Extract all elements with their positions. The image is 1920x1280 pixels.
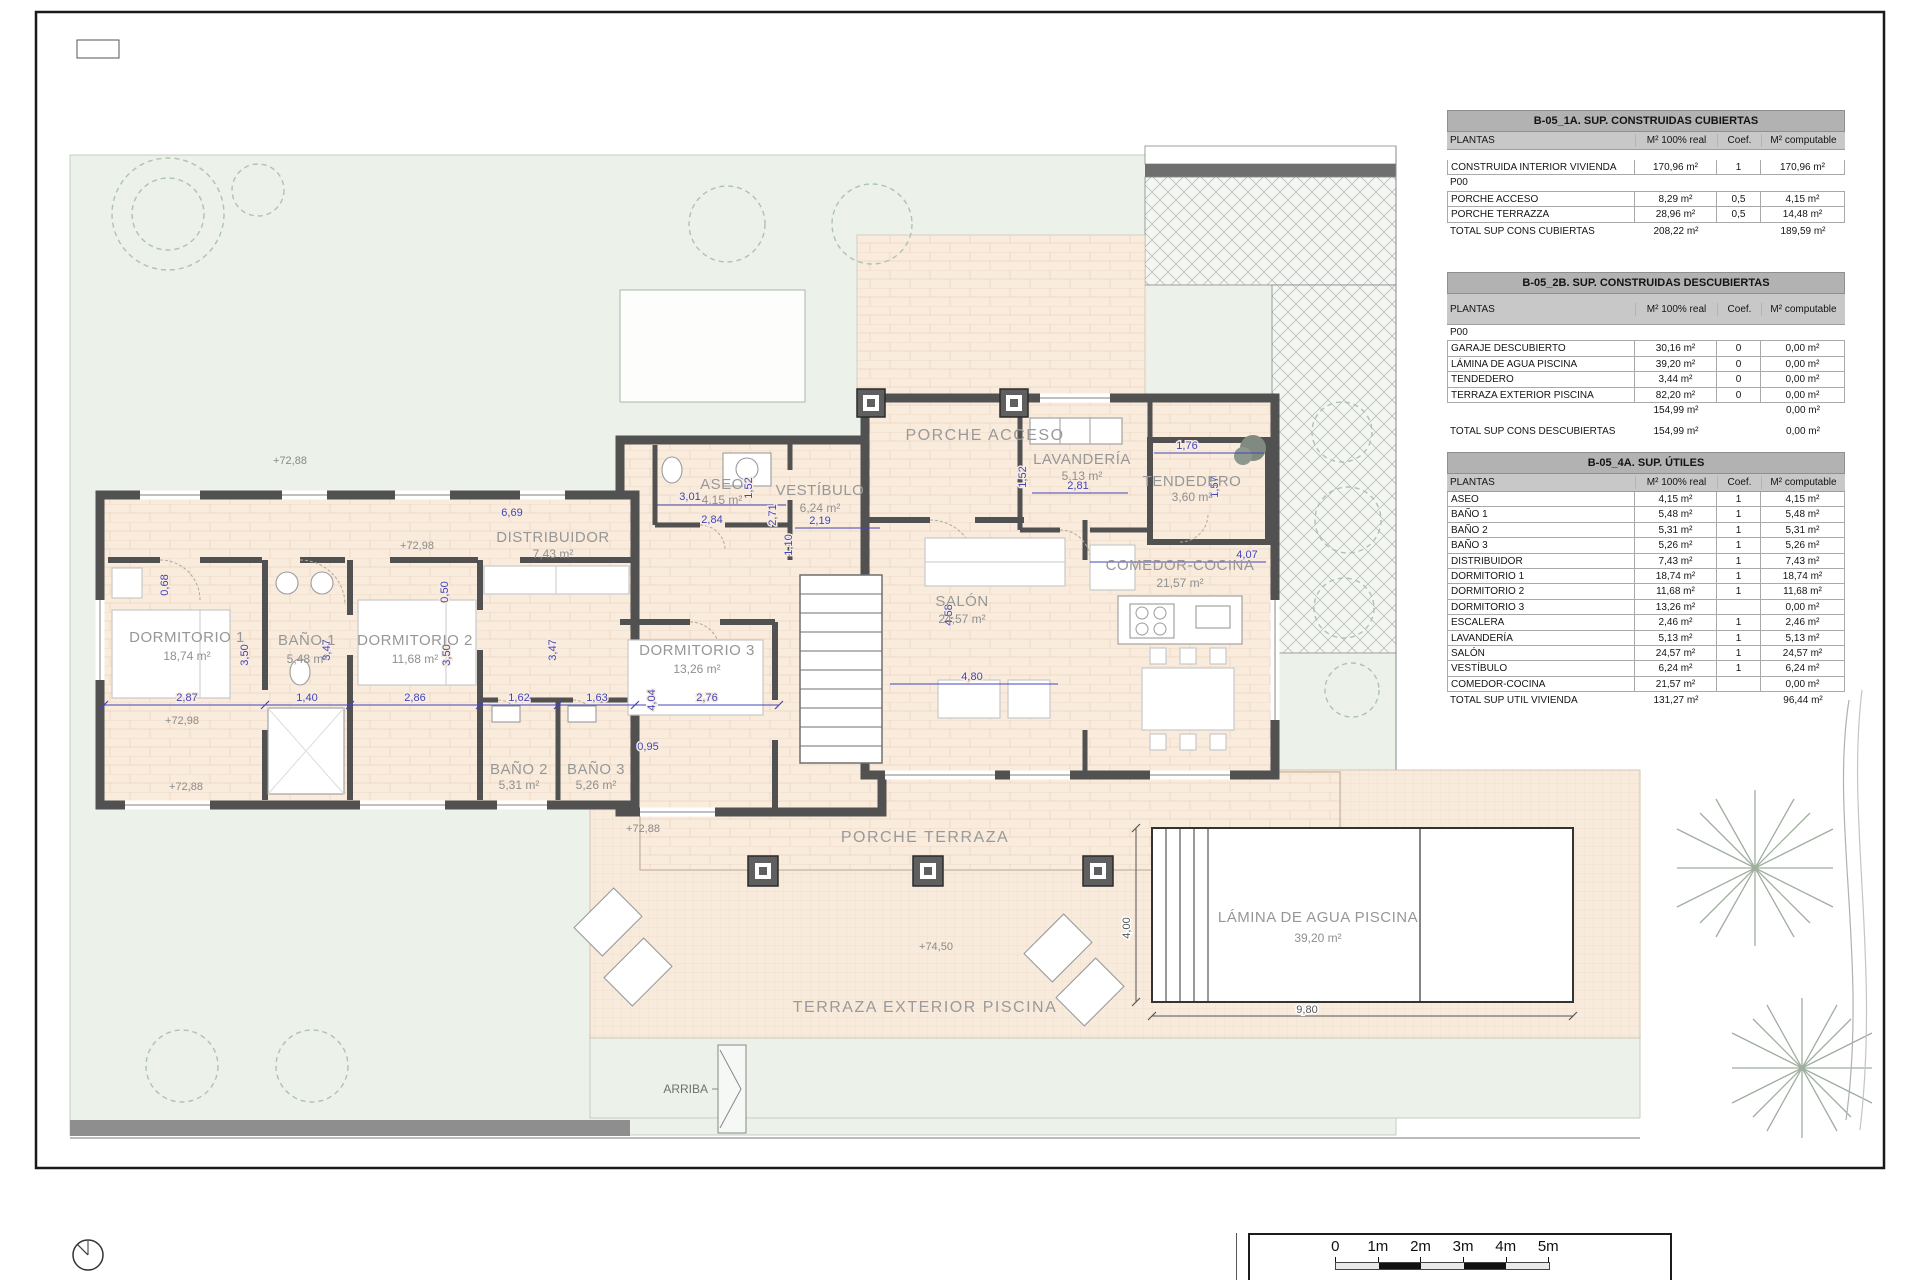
planter (620, 290, 805, 402)
svg-text:2,19: 2,19 (809, 515, 830, 527)
svg-text:0,95: 0,95 (637, 741, 658, 753)
scale-label: 2m (1399, 1238, 1442, 1255)
svg-text:21,57 m²: 21,57 m² (1156, 576, 1203, 590)
table-sup-utiles: B-05_4A. SUP. ÚTILES PLANTAS M² 100% rea… (1447, 452, 1845, 708)
table-row: PORCHE TERRAZZA 28,96 m² 0,5 14,48 m² (1447, 207, 1845, 222)
svg-text:2,71: 2,71 (767, 504, 779, 525)
room-label-bano2: BAÑO 2 (490, 761, 548, 778)
svg-text:1,10: 1,10 (783, 534, 795, 555)
table-row: TERRAZA EXTERIOR PISCINA 82,20 m² 0 0,00… (1447, 388, 1845, 403)
table-row: DORMITORIO 1 18,74 m² 1 18,74 m² (1447, 569, 1845, 584)
room-label-porche-acceso: PORCHE ACCESO (905, 427, 1064, 444)
svg-text:1,76: 1,76 (1176, 440, 1197, 452)
table-row: ASEO 4,15 m² 1 4,15 m² (1447, 492, 1845, 507)
svg-text:0,68: 0,68 (159, 574, 171, 595)
table-row: LAVANDERÍA 5,13 m² 1 5,13 m² (1447, 631, 1845, 646)
svg-text:3,50: 3,50 (239, 644, 251, 665)
table-row: BAÑO 2 5,31 m² 1 5,31 m² (1447, 523, 1845, 538)
table-title: B-05_2B. SUP. CONSTRUIDAS DESCUBIERTAS (1447, 272, 1845, 294)
table-header: PLANTAS M² 100% real Coef. M² computable (1447, 474, 1845, 492)
north-indicator-icon (70, 1237, 106, 1273)
svg-text:11,68 m²: 11,68 m² (392, 652, 438, 666)
stairs (800, 575, 882, 763)
table-total-row: TOTAL SUP UTIL VIVIENDA 131,27 m² 96,44 … (1447, 693, 1845, 708)
title-box (77, 40, 119, 58)
scale-label: 0 (1314, 1238, 1357, 1255)
room-label-lavanderia: LAVANDERÍA (1033, 451, 1131, 468)
scale-label: 5m (1527, 1238, 1570, 1255)
arriba-label: ARRIBA (663, 1082, 708, 1096)
svg-text:4,80: 4,80 (961, 671, 982, 683)
svg-text:4,00: 4,00 (1121, 917, 1133, 938)
table-row: BAÑO 1 5,48 m² 1 5,48 m² (1447, 507, 1845, 522)
room-label-salon: SALÓN (935, 593, 988, 610)
svg-text:5,48 m²: 5,48 m² (287, 652, 328, 666)
room-label-dormitorio1: DORMITORIO 1 (129, 629, 245, 646)
room-label-bano1: BAÑO 1 (278, 632, 336, 649)
svg-text:2,87: 2,87 (176, 692, 197, 704)
svg-text:3,60 m²: 3,60 m² (1172, 490, 1213, 504)
svg-text:7,43 m²: 7,43 m² (533, 547, 574, 561)
table-row: 154,99 m² 0,00 m² (1447, 403, 1845, 418)
svg-text:+72,98: +72,98 (400, 540, 434, 552)
svg-text:13,26 m²: 13,26 m² (673, 662, 720, 676)
room-label-comedor: COMEDOR-COCINA (1106, 557, 1255, 574)
svg-text:+72,88: +72,88 (273, 455, 307, 467)
table-row: DORMITORIO 3 13,26 m² 0,00 m² (1447, 600, 1845, 615)
scale-bar-segments (1335, 1262, 1550, 1270)
svg-text:2,76: 2,76 (696, 692, 717, 704)
room-label-dormitorio2: DORMITORIO 2 (357, 632, 473, 649)
svg-text:1,52: 1,52 (743, 477, 755, 498)
room-label-bano3: BAÑO 3 (567, 761, 625, 778)
table-title: B-05_4A. SUP. ÚTILES (1447, 452, 1845, 474)
table-row: CONSTRUIDA INTERIOR VIVIENDA 170,96 m² 1… (1447, 160, 1845, 175)
svg-text:+74,50: +74,50 (919, 941, 953, 953)
svg-text:2,84: 2,84 (701, 514, 722, 526)
table-row: LÁMINA DE AGUA PISCINA 39,20 m² 0 0,00 m… (1447, 357, 1845, 372)
table-total-row: TOTAL SUP CONS DESCUBIERTAS 154,99 m² 0,… (1447, 424, 1845, 439)
sheet-divider (1236, 1233, 1237, 1280)
svg-text:1,62: 1,62 (508, 692, 529, 704)
svg-text:0,50: 0,50 (439, 581, 451, 602)
room-label-aseo: ASEO (700, 476, 744, 493)
svg-text:1,40: 1,40 (296, 692, 317, 704)
svg-text:9,80: 9,80 (1296, 1004, 1317, 1016)
svg-text:5,26 m²: 5,26 m² (576, 778, 617, 792)
room-label-dormitorio3: DORMITORIO 3 (639, 642, 755, 659)
svg-text:6,69: 6,69 (501, 507, 522, 519)
table-row: DORMITORIO 2 11,68 m² 1 11,68 m² (1447, 584, 1845, 599)
table-row: PORCHE ACCESO 8,29 m² 0,5 4,15 m² (1447, 192, 1845, 207)
table-header: PLANTAS M² 100% real Coef. M² computable (1447, 294, 1845, 325)
table-row: VESTÍBULO 6,24 m² 1 6,24 m² (1447, 661, 1845, 676)
svg-text:39,20 m²: 39,20 m² (1294, 931, 1341, 945)
table-row: ESCALERA 2,46 m² 1 2,46 m² (1447, 615, 1845, 630)
svg-text:4,04: 4,04 (646, 689, 658, 710)
svg-text:+72,88: +72,88 (169, 781, 203, 793)
table-total-row: TOTAL SUP CONS CUBIERTAS 208,22 m² 189,5… (1447, 224, 1845, 239)
svg-text:3,47: 3,47 (547, 639, 559, 660)
table-row: P00 (1447, 325, 1845, 341)
table-row: BAÑO 3 5,26 m² 1 5,26 m² (1447, 538, 1845, 553)
entry-walk (857, 235, 1145, 403)
scale-label: 1m (1357, 1238, 1400, 1255)
table-sup-construidas-descubiertas: B-05_2B. SUP. CONSTRUIDAS DESCUBIERTAS P… (1447, 272, 1845, 440)
table-row: P00 (1447, 175, 1845, 191)
table-row: COMEDOR-COCINA 21,57 m² 0,00 m² (1447, 677, 1845, 692)
pool-label: LÁMINA DE AGUA PISCINA (1218, 909, 1418, 926)
svg-text:+72,98: +72,98 (165, 715, 199, 727)
svg-text:+72,88: +72,88 (626, 823, 660, 835)
svg-text:1,63: 1,63 (586, 692, 607, 704)
table-sup-construidas-cubiertas: B-05_1A. SUP. CONSTRUIDAS CUBIERTAS PLAN… (1447, 110, 1845, 239)
table-header: PLANTAS M² 100% real Coef. M² computable (1447, 132, 1845, 150)
svg-text:1,52: 1,52 (1017, 466, 1029, 487)
drawing-sheet: 2,87 1,40 2,86 1,62 1,63 2,76 0,95 3,50 … (0, 0, 1920, 1280)
svg-text:5,31 m²: 5,31 m² (499, 778, 540, 792)
svg-text:18,74 m²: 18,74 m² (163, 649, 210, 663)
scale-label: 3m (1442, 1238, 1485, 1255)
room-label-distribuidor: DISTRIBUIDOR (496, 529, 610, 546)
room-label-terraza-exterior: TERRAZA EXTERIOR PISCINA (793, 999, 1057, 1016)
svg-text:6,24 m²: 6,24 m² (800, 501, 841, 515)
table-row: GARAJE DESCUBIERTO 30,16 m² 0 0,00 m² (1447, 341, 1845, 356)
svg-text:24,57 m²: 24,57 m² (938, 612, 985, 626)
room-label-porche-terraza: PORCHE TERRAZA (841, 829, 1009, 846)
table-row: SALÓN 24,57 m² 1 24,57 m² (1447, 646, 1845, 661)
table-title: B-05_1A. SUP. CONSTRUIDAS CUBIERTAS (1447, 110, 1845, 132)
palm-trees (1677, 690, 1872, 1138)
svg-text:3,01: 3,01 (679, 491, 700, 503)
scale-label: 4m (1484, 1238, 1527, 1255)
table-row: TENDEDERO 3,44 m² 0 0,00 m² (1447, 372, 1845, 387)
svg-text:2,86: 2,86 (404, 692, 425, 704)
svg-text:4,15 m²: 4,15 m² (702, 493, 743, 507)
room-label-vestibulo: VESTÍBULO (776, 482, 865, 499)
svg-text:5,13 m²: 5,13 m² (1062, 469, 1103, 483)
room-label-tendedero: TENDEDERO (1143, 473, 1242, 490)
scale-bar: 01m2m3m4m5m (1248, 1233, 1672, 1280)
table-row: DISTRIBUIDOR 7,43 m² 1 7,43 m² (1447, 554, 1845, 569)
